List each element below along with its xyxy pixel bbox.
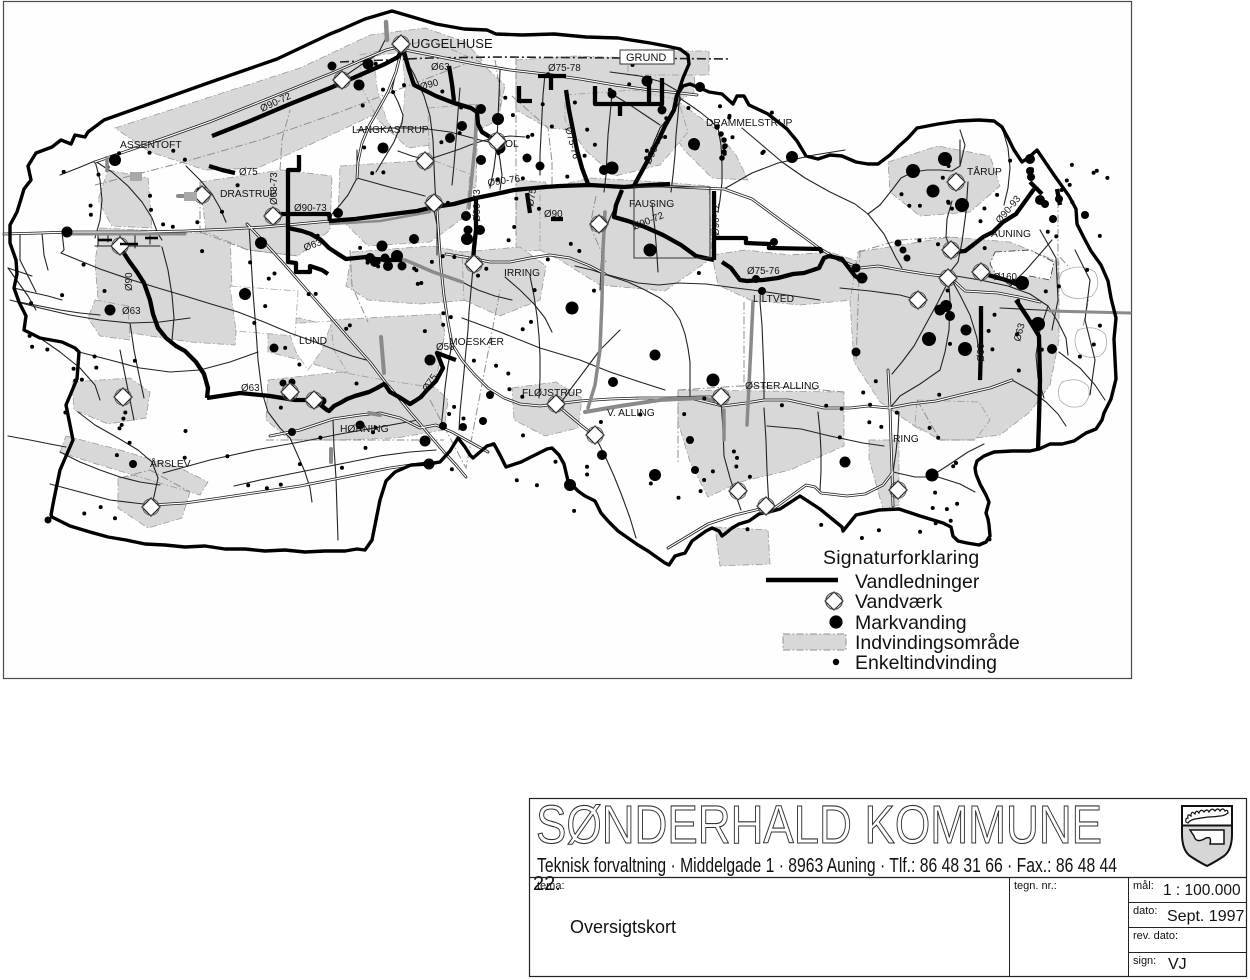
svg-text:GRUND: GRUND xyxy=(626,52,666,64)
svg-text:Indvindingsområde: Indvindingsområde xyxy=(855,632,1020,654)
svg-text:Ø75-78: Ø75-78 xyxy=(548,63,581,74)
svg-text:rev. dato:: rev. dato: xyxy=(1133,930,1178,942)
svg-text:ÅRSLEV: ÅRSLEV xyxy=(150,457,191,470)
svg-text:VJ: VJ xyxy=(1168,956,1187,973)
svg-text:TÅRUP: TÅRUP xyxy=(967,165,1002,178)
svg-text:Teknisk forvaltning · Middelga: Teknisk forvaltning · Middelgade 1 · 896… xyxy=(537,855,1117,877)
svg-text:HØRNING: HØRNING xyxy=(340,424,389,435)
svg-text:Vandledninger: Vandledninger xyxy=(855,571,980,593)
svg-text:OL: OL xyxy=(505,139,519,150)
svg-text:mål:: mål: xyxy=(1133,880,1154,892)
svg-text:ØSTER ALLING: ØSTER ALLING xyxy=(745,381,819,392)
svg-text:sign:: sign: xyxy=(1133,955,1156,967)
svg-text:Ø160: Ø160 xyxy=(993,272,1018,283)
svg-text:RING: RING xyxy=(893,434,919,445)
svg-text:Vandværk: Vandværk xyxy=(855,591,943,613)
svg-text:FAUSING: FAUSING xyxy=(629,199,674,210)
svg-text:Ø63: Ø63 xyxy=(241,383,260,394)
svg-text:Enkeltindvinding: Enkeltindvinding xyxy=(855,652,997,674)
svg-text:dato:: dato: xyxy=(1133,905,1157,917)
svg-text:Ø50: Ø50 xyxy=(436,342,455,353)
svg-text:Ø63: Ø63 xyxy=(431,62,450,73)
svg-text:DRAMMELSTRUP: DRAMMELSTRUP xyxy=(706,118,793,129)
svg-text:tema:: tema: xyxy=(537,880,565,892)
svg-text:Markvanding: Markvanding xyxy=(855,612,967,634)
svg-text:Ø63-73: Ø63-73 xyxy=(269,172,280,205)
svg-text:SØNDERHALD KOMMUNE: SØNDERHALD KOMMUNE xyxy=(536,795,1102,855)
svg-text:LILTVED: LILTVED xyxy=(753,294,794,305)
svg-text:FLØJSTRUP: FLØJSTRUP xyxy=(522,388,582,399)
svg-text:Ø90-73: Ø90-73 xyxy=(472,189,483,222)
svg-text:Ø63: Ø63 xyxy=(122,306,141,317)
svg-text:Signaturforklaring: Signaturforklaring xyxy=(823,547,979,569)
svg-text:1 : 100.000: 1 : 100.000 xyxy=(1163,882,1241,899)
svg-text:Oversigtskort: Oversigtskort xyxy=(570,917,676,937)
svg-text:LUND: LUND xyxy=(299,336,327,347)
svg-text:tegn. nr.:: tegn. nr.: xyxy=(1014,880,1057,892)
svg-text:Sept. 1997: Sept. 1997 xyxy=(1167,908,1245,925)
svg-text:IRRING: IRRING xyxy=(504,268,540,279)
svg-text:MOESKÆR: MOESKÆR xyxy=(449,337,504,348)
svg-text:Ø90: Ø90 xyxy=(544,209,563,220)
svg-text:Ø90: Ø90 xyxy=(124,272,135,291)
svg-text:Ø75: Ø75 xyxy=(239,167,258,178)
svg-text:ASSENTOFT: ASSENTOFT xyxy=(120,140,182,151)
svg-text:Ø90-72: Ø90-72 xyxy=(711,203,722,236)
svg-text:V. ALLING: V. ALLING xyxy=(607,408,655,419)
svg-text:Ø90: Ø90 xyxy=(976,343,987,362)
svg-text:Ø75-76: Ø75-76 xyxy=(747,266,780,277)
svg-text:Ø90-73: Ø90-73 xyxy=(294,203,327,214)
svg-text:UGGELHUSE: UGGELHUSE xyxy=(411,36,493,51)
svg-text:LANGKASTRUP: LANGKASTRUP xyxy=(352,125,429,136)
svg-text:AUNING: AUNING xyxy=(991,229,1031,240)
